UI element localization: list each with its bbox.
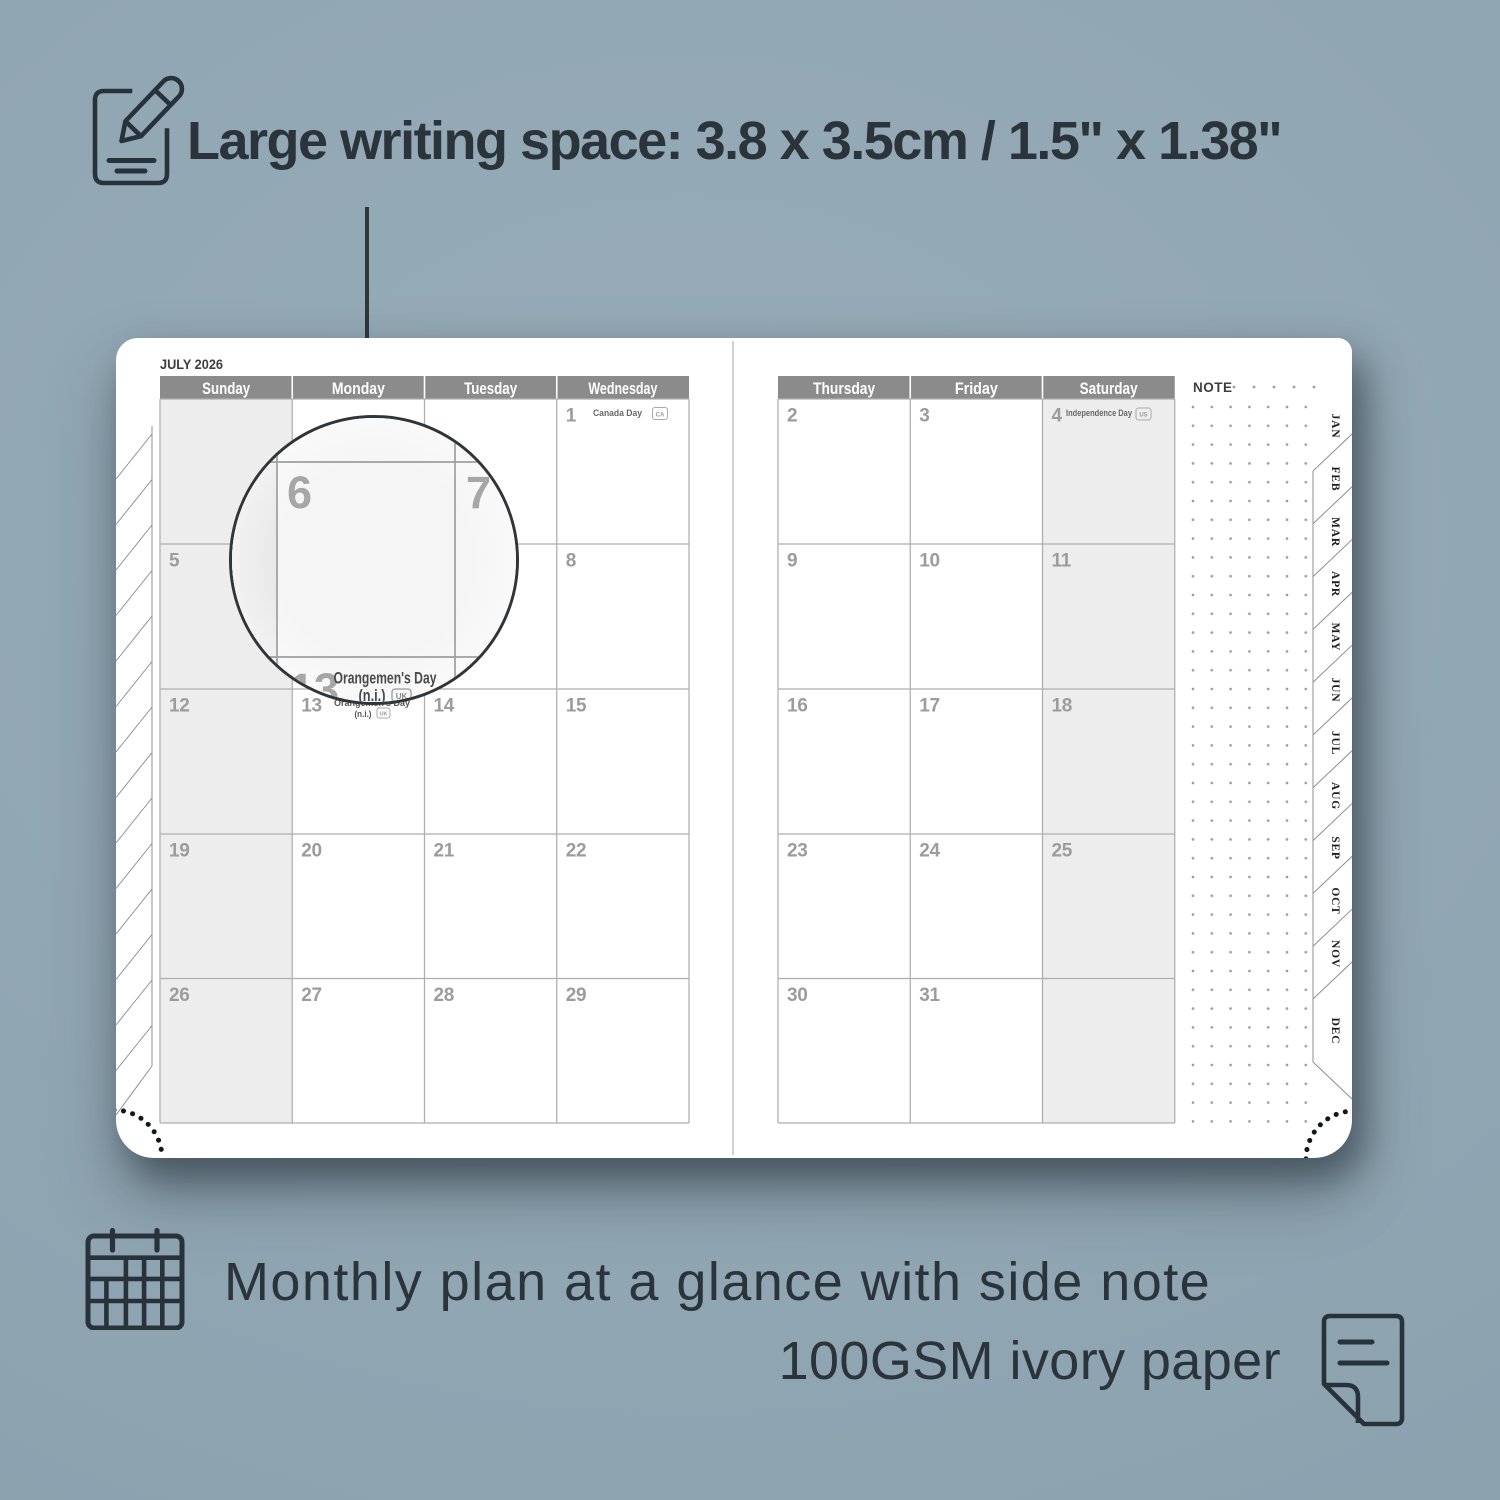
svg-text:26: 26 [169, 985, 190, 1006]
svg-text:Tuesday: Tuesday [464, 379, 517, 398]
svg-text:6: 6 [287, 467, 312, 518]
svg-text:20: 20 [301, 841, 322, 862]
svg-text:JULY 2026: JULY 2026 [160, 356, 223, 372]
svg-text:11: 11 [1052, 551, 1072, 572]
svg-text:Independence Day: Independence Day [1066, 408, 1132, 418]
svg-text:Canada Day: Canada Day [593, 408, 643, 419]
svg-text:Thursday: Thursday [813, 379, 875, 398]
svg-text:SEP: SEP [1329, 836, 1341, 860]
svg-text:15: 15 [566, 696, 587, 717]
svg-text:9: 9 [787, 551, 797, 572]
svg-text:19: 19 [169, 841, 190, 862]
svg-text:7: 7 [466, 467, 491, 518]
svg-text:1: 1 [566, 406, 577, 427]
svg-text:Orangemen's Day: Orangemen's Day [334, 670, 438, 688]
svg-text:MAR: MAR [1329, 517, 1341, 547]
svg-text:JUN: JUN [1329, 678, 1341, 703]
svg-text:APR: APR [1329, 571, 1341, 597]
svg-text:18: 18 [1052, 696, 1073, 717]
svg-text:AUG: AUG [1329, 782, 1341, 810]
svg-text:NOV: NOV [1329, 940, 1341, 968]
svg-text:8: 8 [566, 551, 576, 572]
svg-text:Sunday: Sunday [202, 379, 250, 398]
svg-text:2: 2 [787, 406, 797, 427]
svg-text:FEB: FEB [1329, 467, 1341, 492]
svg-text:12: 12 [169, 696, 190, 717]
svg-text:Saturday: Saturday [1080, 379, 1138, 398]
svg-text:29: 29 [566, 985, 587, 1006]
svg-text:Friday: Friday [955, 379, 998, 398]
svg-text:23: 23 [787, 841, 808, 862]
svg-text:UK: UK [396, 692, 408, 701]
svg-text:21: 21 [434, 841, 455, 862]
svg-text:MAY: MAY [1329, 623, 1341, 652]
svg-text:27: 27 [301, 985, 322, 1006]
svg-text:25: 25 [1052, 841, 1073, 862]
svg-text:28: 28 [434, 985, 455, 1006]
svg-text:30: 30 [787, 985, 808, 1006]
svg-text:10: 10 [919, 551, 940, 572]
svg-text:4: 4 [1052, 406, 1063, 427]
svg-text:US: US [1139, 413, 1147, 419]
svg-text:Monday: Monday [332, 379, 385, 398]
svg-text:JAN: JAN [1329, 414, 1341, 439]
svg-text:DEC: DEC [1329, 1018, 1341, 1045]
svg-text:5: 5 [169, 551, 180, 572]
svg-text:(n.i.): (n.i.) [359, 687, 386, 702]
svg-text:31: 31 [919, 985, 940, 1006]
svg-text:16: 16 [787, 696, 808, 717]
svg-text:3: 3 [919, 406, 929, 427]
svg-text:CA: CA [656, 413, 665, 419]
svg-text:(n.i.): (n.i.) [355, 709, 372, 720]
svg-text:UK: UK [380, 712, 388, 718]
svg-text:24: 24 [919, 841, 940, 862]
svg-text:NOTE: NOTE [1193, 380, 1233, 395]
svg-text:JUL: JUL [1329, 731, 1341, 755]
svg-text:17: 17 [919, 696, 940, 717]
svg-text:Wednesday: Wednesday [588, 379, 657, 398]
svg-text:22: 22 [566, 841, 587, 862]
svg-text:13: 13 [289, 664, 339, 702]
svg-text:OCT: OCT [1329, 887, 1341, 914]
